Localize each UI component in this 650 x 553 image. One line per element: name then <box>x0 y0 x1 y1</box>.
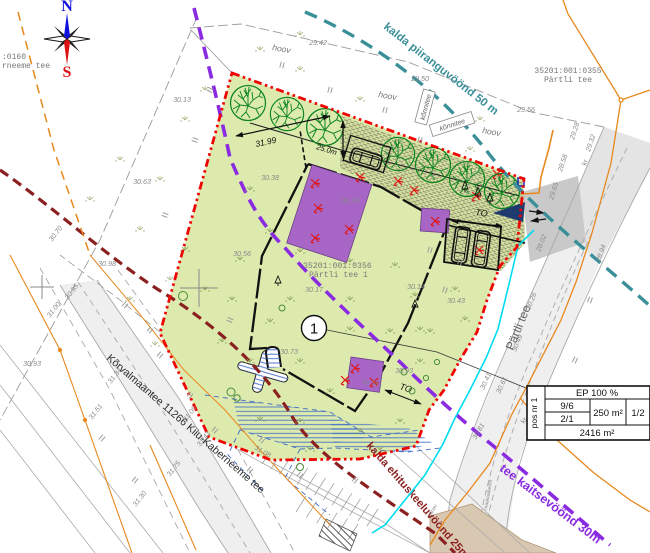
svg-text:9/6: 9/6 <box>560 401 573 412</box>
svg-text:Pärtli tee: Pärtli tee <box>544 76 592 85</box>
svg-text:EP 100 %: EP 100 % <box>576 388 619 399</box>
svg-text:˙ 30.56: ˙ 30.56 <box>230 249 251 258</box>
svg-text:2416 m²: 2416 m² <box>580 428 615 439</box>
svg-text:250 m²: 250 m² <box>593 408 623 419</box>
svg-text:˙ 30.38: ˙ 30.38 <box>258 173 279 182</box>
svg-text:˙ 30.63: ˙ 30.63 <box>130 177 151 186</box>
svg-text:˙ 30.14: ˙ 30.14 <box>404 282 425 291</box>
svg-text:˙ 29.56: ˙ 29.56 <box>514 105 535 114</box>
svg-text::0160: :0160 <box>2 53 26 62</box>
svg-text:35201:001:0356: 35201:001:0356 <box>303 262 372 271</box>
svg-text:2/1: 2/1 <box>560 414 573 425</box>
svg-text:˙ 30.17: ˙ 30.17 <box>302 285 324 294</box>
svg-text:˙ 29.42: ˙ 29.42 <box>306 38 327 47</box>
svg-text:˙ 30.73: ˙ 30.73 <box>277 347 298 356</box>
svg-text:Pärtli tee 1: Pärtli tee 1 <box>309 270 368 280</box>
svg-text:1/2: 1/2 <box>631 408 644 419</box>
svg-text:rneeme tee: rneeme tee <box>2 62 50 71</box>
svg-text:˙ 30.13: ˙ 30.13 <box>170 95 191 104</box>
svg-text:N: N <box>61 0 73 15</box>
svg-text:1: 1 <box>310 321 318 338</box>
svg-text:˙ 30.93: ˙ 30.93 <box>392 366 413 375</box>
svg-text:35201:001:0355: 35201:001:0355 <box>534 67 601 76</box>
svg-text:˙ 30.93: ˙ 30.93 <box>20 359 41 368</box>
svg-text:S: S <box>63 64 72 81</box>
svg-text:TO: TO <box>475 207 489 219</box>
svg-text:˙ 29.50: ˙ 29.50 <box>408 74 429 83</box>
svg-text:pos nr 1: pos nr 1 <box>529 397 539 428</box>
svg-text:˙ 30.98: ˙ 30.98 <box>95 259 116 268</box>
svg-text:˙ 30.43: ˙ 30.43 <box>444 296 465 305</box>
svg-text:˙ 30.26: ˙ 30.26 <box>338 196 359 205</box>
